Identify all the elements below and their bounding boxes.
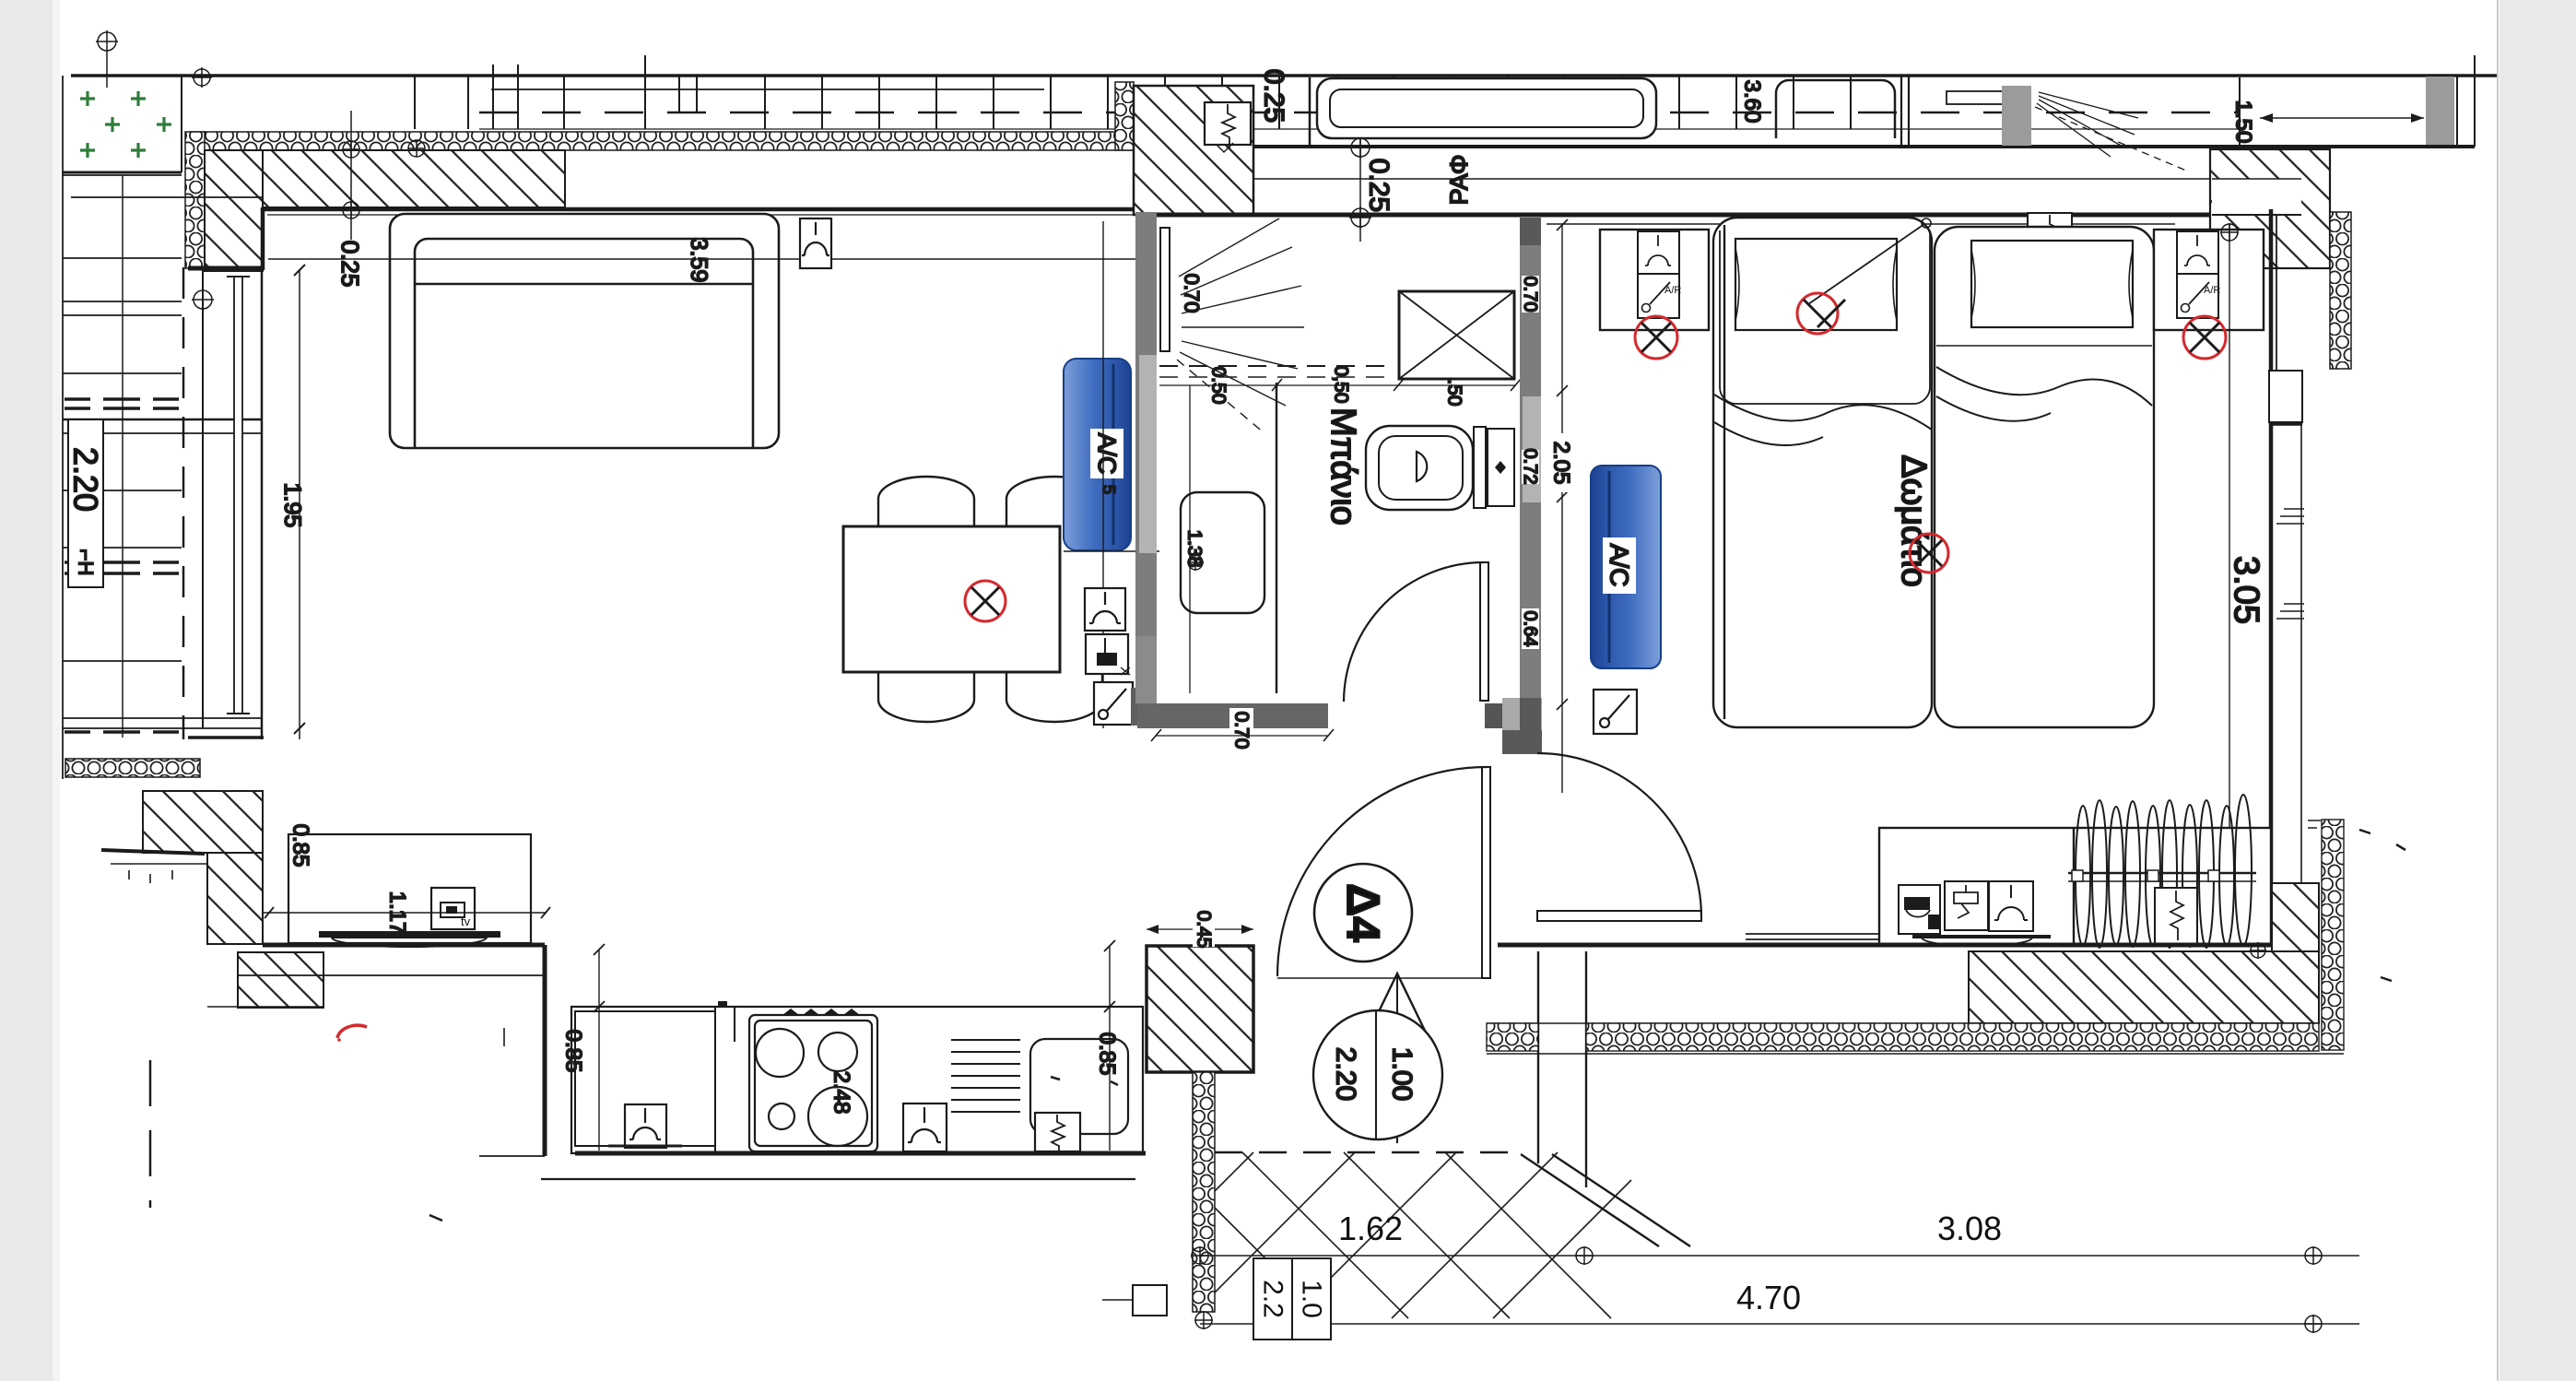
svg-text:Δ4: Δ4 (1337, 883, 1389, 942)
svg-text:2.2: 2.2 (1258, 1280, 1288, 1318)
svg-text:3.05: 3.05 (2227, 556, 2265, 624)
svg-text:2.20: 2.20 (67, 447, 105, 512)
svg-text:0.50: 0.50 (1208, 367, 1229, 405)
svg-text:0.85: 0.85 (1095, 1033, 1120, 1076)
svg-text:A/R: A/R (2204, 285, 2220, 296)
svg-text:1.0: 1.0 (1297, 1280, 1327, 1318)
svg-text:1.62: 1.62 (1338, 1210, 1403, 1247)
svg-text:tv: tv (461, 915, 471, 928)
svg-text:Μπάνιο: Μπάνιο (1323, 407, 1362, 525)
svg-text:3.59: 3.59 (686, 238, 712, 283)
svg-text:0,50: 0,50 (1331, 366, 1352, 404)
svg-text:0.25: 0.25 (1259, 69, 1289, 123)
svg-text:1.95: 1.95 (279, 483, 305, 528)
svg-text:0.70: 0.70 (1181, 274, 1204, 313)
svg-text:1.17: 1.17 (385, 891, 410, 935)
svg-text:0.25: 0.25 (336, 241, 364, 288)
svg-text:⌐H: ⌐H (75, 549, 98, 576)
svg-text:3.08: 3.08 (1937, 1210, 2002, 1247)
svg-text:A/C: A/C (1606, 544, 1634, 587)
svg-text:1.00: 1.00 (1387, 1047, 1417, 1101)
svg-text:0.85: 0.85 (561, 1030, 586, 1073)
svg-text:A/C: A/C (1093, 432, 1121, 474)
svg-text:0.25: 0.25 (1364, 159, 1394, 212)
svg-text:5: 5 (1100, 485, 1118, 494)
svg-text:2.05: 2.05 (1549, 442, 1574, 485)
svg-text:4.70: 4.70 (1736, 1279, 1801, 1316)
svg-text:0.45: 0.45 (1194, 911, 1215, 949)
svg-text:2.48: 2.48 (829, 1071, 854, 1115)
svg-text:0.72: 0.72 (1520, 449, 1540, 485)
svg-text:Δωμάτιο: Δωμάτιο (1894, 454, 1933, 587)
svg-text:A/R: A/R (1664, 285, 1681, 296)
svg-text:0.70: 0.70 (1520, 277, 1540, 313)
svg-text:3.60: 3.60 (1740, 80, 1765, 124)
svg-text:2.20: 2.20 (1331, 1047, 1361, 1101)
svg-text:ΡΑΦ: ΡΑΦ (1445, 155, 1473, 206)
svg-text:1.50: 1.50 (2231, 100, 2256, 144)
svg-text:0.85: 0.85 (288, 824, 313, 868)
svg-text:0.70: 0.70 (1231, 712, 1253, 750)
svg-text:0.64: 0.64 (1520, 611, 1540, 647)
